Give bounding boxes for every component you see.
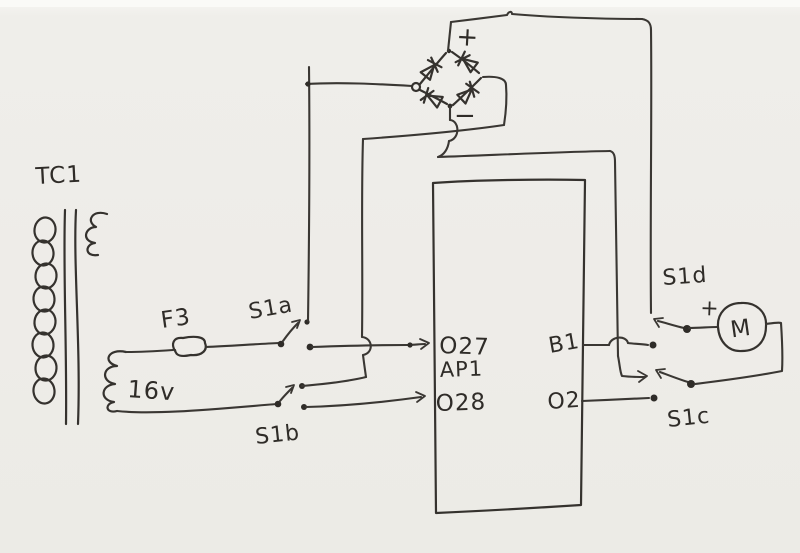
switch-s1c: S1c (651, 369, 712, 433)
coil-loop (31, 239, 54, 266)
s1b-arm (280, 388, 292, 401)
controller-input-bottom-label: O28 (435, 389, 486, 417)
wire-b1-output (583, 338, 648, 345)
wire-o28-input (306, 392, 425, 407)
s1c-arm (660, 372, 688, 382)
core-line (75, 210, 78, 424)
coil-loop (34, 263, 57, 290)
controller-output-top-label: B1 (547, 329, 582, 359)
bridge-rectifier: + − (412, 22, 481, 131)
coil-loop (33, 286, 56, 312)
junction-blob (305, 81, 310, 86)
bridge-left-node-circle (412, 83, 420, 91)
wire-o2-output (582, 398, 649, 401)
wire-ac1-s1a-to-bridge (305, 67, 412, 321)
s1c-common-contact (687, 380, 695, 388)
transformer-tc1: TC1 16v (31, 162, 176, 424)
junction-blob (407, 342, 412, 347)
bridge-plus-label: + (456, 22, 480, 53)
wire-vertical (610, 151, 618, 356)
wire-secondary-bottom (117, 404, 277, 412)
wire-horizontal (438, 151, 610, 157)
controller-name-label: AP1 (439, 356, 483, 381)
transformer-label: TC1 (34, 162, 83, 190)
wire-motor-left (689, 327, 717, 328)
wire-horizontal (582, 398, 649, 401)
scan-edge-strip (0, 0, 800, 7)
coil-loop (35, 355, 58, 381)
motor-plus-label: + (700, 296, 720, 322)
secondary-voltage-label: 16v (127, 375, 177, 406)
s1a-arm (283, 323, 298, 341)
fuse-body (173, 337, 206, 356)
switch-s1b-label: S1b (254, 420, 301, 450)
wire-horizontal (306, 397, 421, 407)
coil-loop (31, 332, 54, 359)
controller-output-bottom-label: O2 (547, 388, 582, 415)
s1d-lower-contact (650, 342, 657, 349)
wire-secondary-top (126, 350, 173, 352)
wire-top-horizontal (451, 12, 642, 22)
wire-vertical (308, 67, 309, 321)
wire-vertical (362, 139, 363, 337)
wire-right-vertical (642, 19, 651, 313)
secondary-winding-16v (104, 351, 126, 411)
wire-horizontal (306, 83, 412, 86)
wire-segment (448, 22, 451, 51)
switch-s1d-label: S1d (662, 263, 709, 291)
secondary-winding-upper (86, 213, 107, 255)
wire-segment (618, 356, 645, 377)
wire-up-to-right-node (483, 77, 506, 125)
motor-label: M (729, 315, 753, 344)
scanned-schematic-sheet: TC1 16v F3 S1a (0, 0, 800, 553)
wire-dc-plus (448, 12, 651, 313)
core-line (64, 210, 66, 424)
switch-s1c-label: S1c (666, 404, 711, 433)
wire-segment (438, 141, 449, 157)
wire-fuse-to-s1a (206, 343, 279, 347)
wire-segment (302, 377, 366, 386)
circuit-schematic: TC1 16v F3 S1a (0, 0, 800, 553)
s1c-lower-contact (651, 395, 658, 402)
switch-s1a-label: S1a (247, 293, 295, 325)
primary-winding (31, 216, 57, 405)
wire-horizontal (363, 125, 504, 139)
s1d-arm (658, 321, 684, 328)
switch-s1a: S1a (247, 293, 314, 351)
wire-segment (363, 355, 366, 377)
controller-block-ap1: O27 AP1 O28 B1 O2 (433, 180, 585, 513)
motor-m: + M (689, 296, 782, 384)
fuse-label: F3 (159, 304, 192, 334)
wire-segment (628, 343, 648, 345)
